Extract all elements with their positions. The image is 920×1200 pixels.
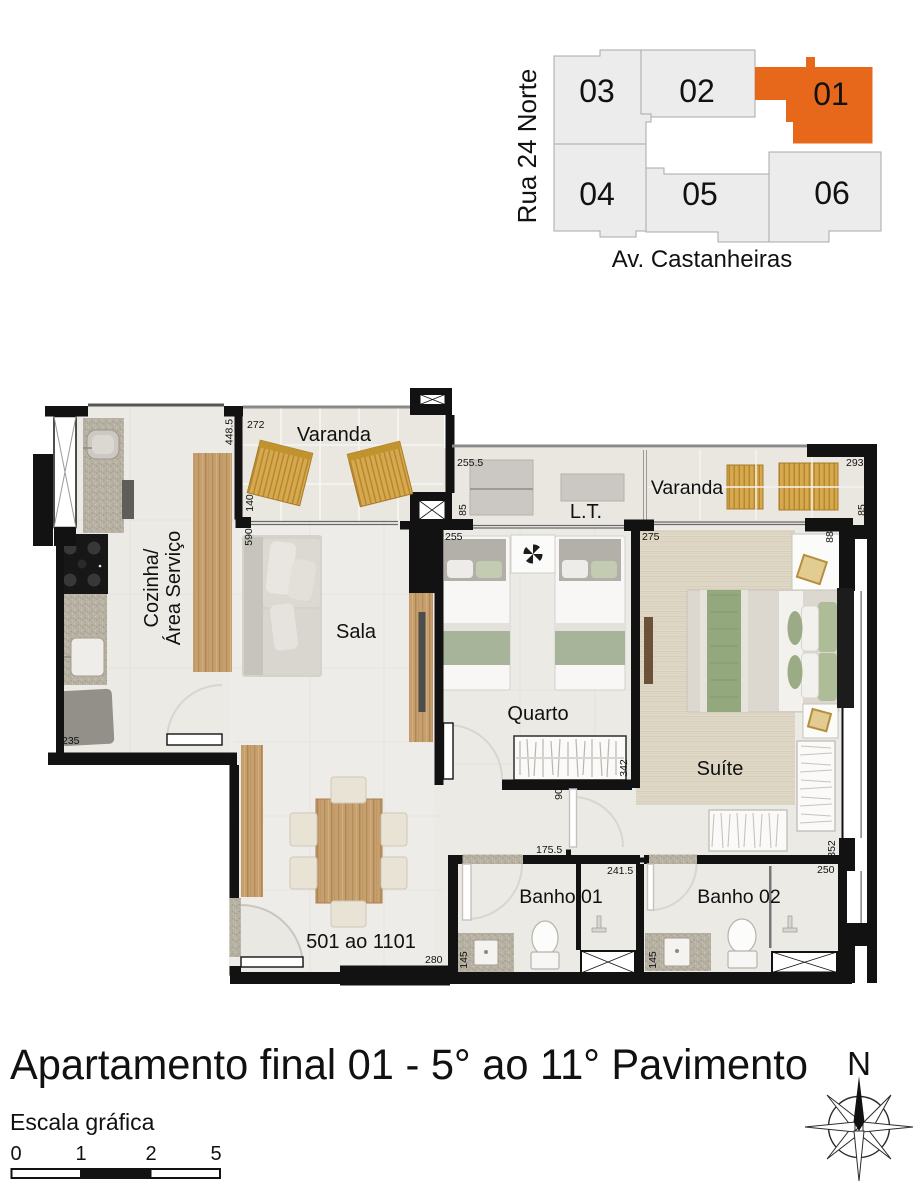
svg-text:Banho 02: Banho 02 [697,886,781,908]
svg-text:90: 90 [553,788,565,800]
svg-text:342: 342 [618,759,630,777]
svg-text:Banho 01: Banho 01 [519,886,603,908]
svg-text:255: 255 [445,531,463,543]
svg-text:Rua 24 Norte: Rua 24 Norte [512,69,542,224]
svg-text:2: 2 [145,1143,156,1165]
svg-text:448.5: 448.5 [224,419,236,445]
svg-text:241.5: 241.5 [607,865,633,877]
svg-text:01: 01 [813,76,849,112]
svg-text:140: 140 [244,494,256,512]
svg-text:Quarto: Quarto [507,703,568,725]
svg-text:03: 03 [579,73,615,109]
svg-text:Apartamento final 01 - 5° ao 1: Apartamento final 01 - 5° ao 11° Pavimen… [10,1041,808,1089]
svg-text:293: 293 [846,457,864,469]
svg-text:175.5: 175.5 [536,844,562,856]
svg-text:275: 275 [642,531,660,543]
svg-text:280: 280 [425,954,443,966]
svg-text:02: 02 [679,73,715,109]
svg-text:5: 5 [210,1143,221,1165]
svg-text:255.5: 255.5 [457,457,483,469]
svg-text:272: 272 [247,419,265,431]
svg-text:05: 05 [682,176,718,212]
svg-text:Suíte: Suíte [697,758,744,780]
svg-text:590: 590 [243,528,255,546]
svg-text:0: 0 [10,1143,21,1165]
svg-text:145: 145 [647,951,659,969]
svg-text:Varanda: Varanda [651,477,723,499]
svg-text:Sala: Sala [336,621,377,643]
svg-text:145: 145 [458,951,470,969]
svg-text:88: 88 [824,531,836,543]
svg-text:Varanda: Varanda [297,424,372,446]
svg-text:235: 235 [62,735,80,747]
svg-text:85: 85 [457,504,469,516]
svg-text:Escala gráfica: Escala gráfica [10,1109,155,1135]
svg-text:04: 04 [579,176,615,212]
svg-text:Av. Castanheiras: Av. Castanheiras [612,246,793,273]
svg-text:1: 1 [75,1143,86,1165]
svg-text:06: 06 [814,175,850,211]
svg-text:352: 352 [826,840,838,858]
svg-text:501 ao 1101: 501 ao 1101 [306,931,416,953]
svg-text:250: 250 [817,864,835,876]
svg-text:L.T.: L.T. [570,501,602,523]
svg-text:85: 85 [856,504,868,516]
